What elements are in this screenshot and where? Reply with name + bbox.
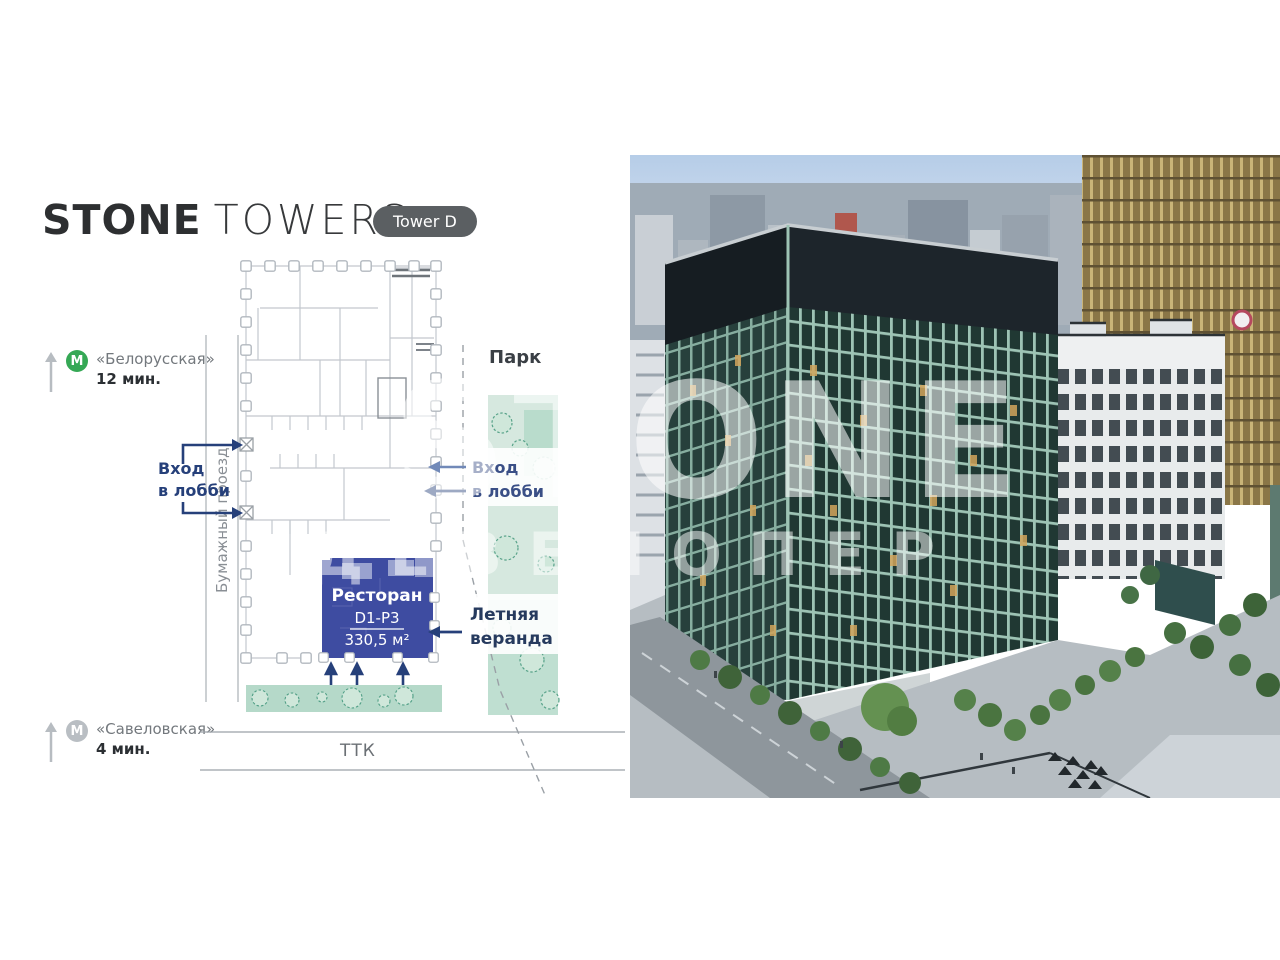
summer-terrace: Летняя веранда [428, 594, 562, 654]
summer-terrace-line2: веранда [470, 629, 553, 649]
arrow-left-icon [424, 461, 466, 497]
up-arrow-icon [44, 350, 58, 394]
lobby-entrance-left-line2: в лобби [158, 481, 230, 500]
white-building [1045, 320, 1225, 579]
lobby-entrance-left-line1: Вход [158, 459, 205, 478]
park-label: Парк [489, 347, 541, 368]
metro-icon: M [66, 720, 88, 742]
brand-logo-stone: STONE [42, 196, 202, 244]
unit-name: Ресторан [332, 586, 423, 606]
tower-sign-icon [1233, 311, 1251, 329]
unit-area: 330,5 м² [344, 631, 409, 649]
up-arrow-icon [44, 720, 58, 764]
lobby-entrance-right: Вход в лобби [424, 448, 562, 506]
street-bumazhny: Бумажный проезд [206, 335, 238, 702]
lobby-entrance-right-line1: Вход [472, 458, 519, 477]
brochure-page: STONE TOWERS Tower D M «Белорусская» 12 … [0, 0, 1280, 960]
street-label: Бумажный проезд [213, 448, 231, 593]
highway-label: ТТК [339, 741, 376, 761]
lobby-entrance-right-line2: в лобби [472, 482, 544, 501]
metro-icon: M [66, 350, 88, 372]
floor-plan: Бумажный проезд Парк [140, 248, 625, 808]
unit-code: D1-P3 [354, 609, 399, 627]
street-greenery [246, 685, 442, 712]
tower-badge: Tower D [373, 206, 477, 237]
building-core [378, 270, 434, 418]
building-render-photo [630, 155, 1280, 798]
unit-entry-arrows [326, 664, 408, 686]
brand-logo: STONE TOWERS [42, 196, 410, 244]
highway-ttk: ТТК [200, 732, 625, 770]
summer-terrace-line1: Летняя [470, 605, 539, 625]
park-area [488, 395, 559, 715]
unit-restaurant[interactable]: Ресторан D1-P3 330,5 м² [319, 558, 440, 662]
